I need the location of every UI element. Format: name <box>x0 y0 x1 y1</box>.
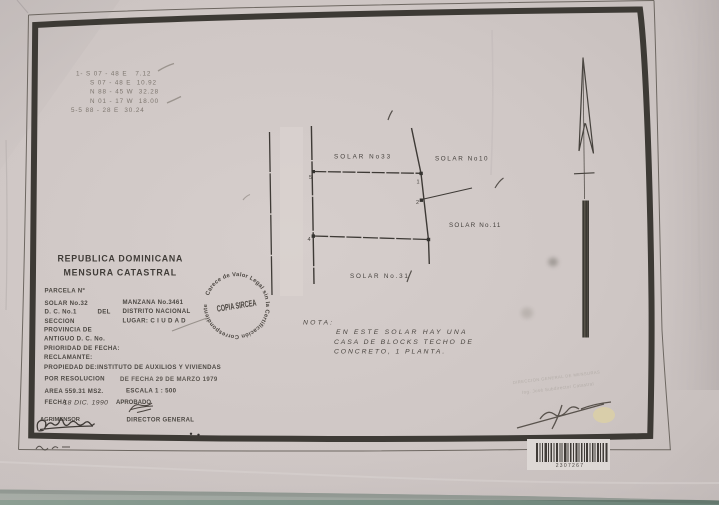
svg-text:MENSURA CATASTRAL: MENSURA CATASTRAL <box>64 268 178 278</box>
svg-text:ESCALA 1 : 500: ESCALA 1 : 500 <box>126 388 177 395</box>
svg-text:N 88 - 45 W 32.28: N 88 - 45 W 32.28 <box>90 89 159 96</box>
svg-text:SOLAR No.31: SOLAR No.31 <box>350 273 410 280</box>
svg-text:SOLAR No.11: SOLAR No.11 <box>449 222 502 229</box>
svg-text:PROVINCIA DE: PROVINCIA DE <box>44 327 92 334</box>
svg-text:EN ESTE SOLAR HAY UNA: EN ESTE SOLAR HAY UNA <box>336 329 468 336</box>
svg-text:DISTRITO NACIONAL: DISTRITO NACIONAL <box>123 308 191 315</box>
svg-text:SOLAR No10: SOLAR No10 <box>435 156 489 163</box>
svg-text:2307267: 2307267 <box>556 463 585 469</box>
svg-text:NOTA:: NOTA: <box>303 320 334 327</box>
svg-text:D. C. No.1: D. C. No.1 <box>45 309 78 316</box>
svg-text:LUGAR: C I U D A D: LUGAR: C I U D A D <box>123 317 187 324</box>
svg-text:5-5 88 - 28 E 30.24: 5-5 88 - 28 E 30.24 <box>71 107 145 114</box>
svg-text:POR RESOLUCION: POR RESOLUCION <box>45 376 105 383</box>
svg-text:1: 1 <box>417 180 420 186</box>
svg-text:SOLAR No.32: SOLAR No.32 <box>45 300 89 307</box>
svg-text:SOLAR No33: SOLAR No33 <box>334 153 392 160</box>
svg-text:5: 5 <box>309 175 312 181</box>
svg-text:CASA DE BLOCKS TECHO DE: CASA DE BLOCKS TECHO DE <box>334 339 474 346</box>
svg-text:RECLAMANTE:: RECLAMANTE: <box>44 354 93 361</box>
svg-text:AREA 559.31 MS2.: AREA 559.31 MS2. <box>45 388 104 395</box>
svg-text:REPUBLICA DOMINICANA: REPUBLICA DOMINICANA <box>58 254 184 264</box>
svg-text:MANZANA No.3461: MANZANA No.3461 <box>123 299 184 306</box>
svg-text:CONCRETO, 1 PLANTA.: CONCRETO, 1 PLANTA. <box>334 349 446 356</box>
svg-text:N 01 - 17 W 18.00: N 01 - 17 W 18.00 <box>90 98 159 105</box>
svg-text:PARCELA Nº: PARCELA Nº <box>45 288 86 295</box>
svg-text:S 07 - 48 E 10.92: S 07 - 48 E 10.92 <box>90 80 157 87</box>
svg-text:4: 4 <box>308 237 311 243</box>
svg-text:DE FECHA 29 DE MARZO 1979: DE FECHA 29 DE MARZO 1979 <box>120 376 218 383</box>
svg-text:DEL: DEL <box>98 309 111 316</box>
svg-text:1- S 07 - 48 E 7.12: 1- S 07 - 48 E 7.12 <box>76 71 151 78</box>
svg-text:SECCION: SECCION <box>45 318 75 325</box>
svg-text:ANTIGUO D. C. No.: ANTIGUO D. C. No. <box>44 336 105 343</box>
svg-text:DIRECTOR GENERAL: DIRECTOR GENERAL <box>127 417 195 423</box>
svg-text:PRIORIDAD DE FECHA:: PRIORIDAD DE FECHA: <box>44 345 120 352</box>
svg-text:2: 2 <box>416 200 419 206</box>
svg-text:PROPIEDAD DE:INSTITUTO DE AUXI: PROPIEDAD DE:INSTITUTO DE AUXILIOS Y VIV… <box>44 364 221 371</box>
svg-text:18 DIC. 1990: 18 DIC. 1990 <box>64 399 109 406</box>
